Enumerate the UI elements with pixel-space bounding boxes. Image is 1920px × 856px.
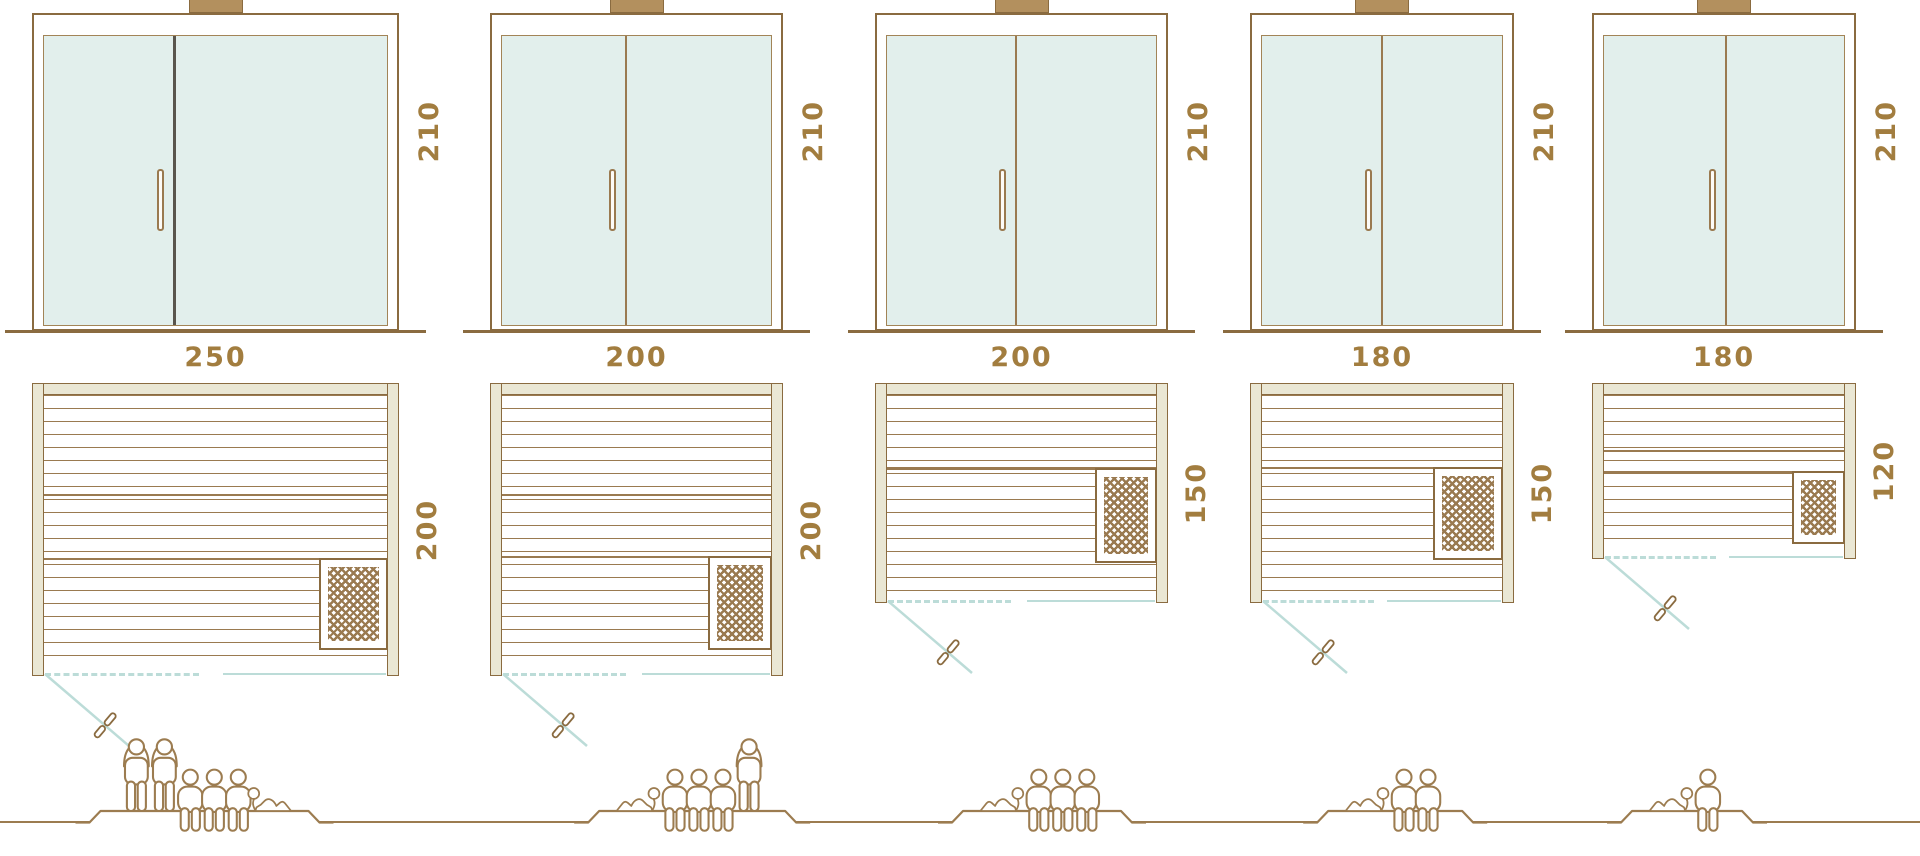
glass-doors: [501, 35, 772, 326]
person-lying-icon: [248, 788, 291, 811]
bench-edge-line: [502, 494, 771, 496]
plan-wall-back: [32, 383, 399, 395]
sauna-column: 210 250 200: [32, 0, 399, 856]
door-divider: [625, 36, 627, 325]
heater-bench-surround: [708, 556, 772, 650]
floor-plan-area: 150: [1250, 383, 1514, 603]
door-elevation: 210: [32, 0, 399, 333]
floor-plan: [32, 383, 399, 676]
floor-plan-area: 200: [32, 383, 399, 676]
floor-plan: [875, 383, 1168, 603]
roof-cap: [610, 0, 664, 13]
door-handle: [157, 169, 164, 231]
plan-wall-right: [771, 383, 783, 676]
heater-grate-icon: [1801, 480, 1836, 535]
door-handle: [1709, 169, 1716, 231]
plan-wall-left: [875, 383, 887, 603]
height-dimension-label: 210: [1183, 100, 1214, 162]
elevation-ground-line: [1565, 330, 1883, 333]
door-handle: [999, 169, 1006, 231]
elevation-ground-line: [1223, 330, 1541, 333]
door-divider: [1381, 36, 1383, 325]
capacity-people-icons: [1250, 744, 1514, 854]
person-lying-icon: [980, 788, 1023, 811]
plan-wall-back: [1250, 383, 1514, 395]
plan-wall-right: [1844, 383, 1856, 559]
bench-edge-line: [44, 494, 387, 496]
roof-cap: [1697, 0, 1751, 13]
door-frame: [32, 13, 399, 331]
depth-dimension-label: 120: [1869, 440, 1900, 502]
door-frame: [875, 13, 1168, 331]
door-frame: [490, 13, 783, 331]
plan-wall-left: [32, 383, 44, 676]
plan-wall-left: [1250, 383, 1262, 603]
width-dimension-label: 180: [1250, 336, 1514, 382]
door-handle: [609, 169, 616, 231]
height-dimension-label: 210: [414, 100, 445, 162]
heater-bench-surround: [319, 558, 388, 650]
door-swing-arc: [1592, 557, 1762, 677]
person-lying-icon: [1649, 788, 1692, 811]
bench-edge-line: [1604, 450, 1844, 452]
sauna-column: 210 180 150: [1250, 0, 1514, 856]
glass-doors: [43, 35, 388, 326]
door-handle-icon: [1654, 595, 1677, 621]
plan-wall-right: [1156, 383, 1168, 603]
heater-bench-surround: [1792, 471, 1845, 544]
glass-doors: [1261, 35, 1503, 326]
person-standing-icon: [152, 739, 177, 811]
width-dimension-label: 200: [875, 336, 1168, 382]
door-handle-icon: [552, 712, 575, 738]
width-dimension-label: 250: [32, 336, 399, 382]
heater-bench-surround: [1095, 468, 1157, 563]
door-handle-icon: [94, 712, 117, 738]
capacity-people-icons: [875, 744, 1168, 854]
door-divider: [1725, 36, 1727, 325]
glass-wall-line: [223, 673, 386, 675]
door-swing-arc: [875, 601, 1045, 721]
glass-doors: [1603, 35, 1845, 326]
elevation-ground-line: [5, 330, 426, 333]
heater-grate-icon: [1104, 477, 1148, 554]
sauna-column: 210 200 200: [490, 0, 783, 856]
door-elevation: 210: [490, 0, 783, 333]
width-dimension-label: 180: [1592, 336, 1856, 382]
sauna-column: 210 180 120: [1592, 0, 1856, 856]
floor-plan: [490, 383, 783, 676]
elevation-ground-line: [463, 330, 810, 333]
elevation-ground-line: [848, 330, 1195, 333]
door-handle-icon: [937, 639, 960, 665]
door-swing-arc: [1250, 601, 1420, 721]
roof-cap: [1355, 0, 1409, 13]
height-dimension-label: 210: [1871, 100, 1902, 162]
capacity-people-icons: [1592, 744, 1856, 854]
depth-dimension-label: 150: [1181, 462, 1212, 524]
door-handle: [1365, 169, 1372, 231]
door-divider: [173, 36, 176, 325]
width-dimension-label: 200: [490, 336, 783, 382]
person-lying-icon: [1346, 788, 1389, 811]
plan-wall-right: [1502, 383, 1514, 603]
floor-plan-area: 200: [490, 383, 783, 676]
floor-plan-area: 120: [1592, 383, 1856, 559]
plan-wall-back: [875, 383, 1168, 395]
door-elevation: 210: [1592, 0, 1856, 333]
plan-wall-left: [1592, 383, 1604, 559]
glass-wall-line: [1027, 600, 1155, 602]
depth-dimension-label: 200: [412, 498, 443, 560]
plan-wall-back: [1592, 383, 1856, 395]
plan-wall-back: [490, 383, 783, 395]
depth-dimension-label: 200: [796, 498, 827, 560]
person-standing-icon: [737, 739, 762, 811]
depth-dimension-label: 150: [1527, 462, 1558, 524]
roof-cap: [995, 0, 1049, 13]
person-lying-icon: [617, 788, 660, 811]
heater-grate-icon: [1442, 476, 1494, 551]
capacity-people-icons: [32, 744, 399, 854]
height-dimension-label: 210: [1529, 100, 1560, 162]
person-standing-icon: [124, 739, 149, 811]
floor-plan-area: 150: [875, 383, 1168, 603]
heater-grate-icon: [328, 567, 379, 641]
floor-plan: [1250, 383, 1514, 603]
capacity-people-icons: [490, 744, 783, 854]
door-handle-icon: [1312, 639, 1335, 665]
sauna-column: 210 200 150: [875, 0, 1168, 856]
plan-wall-right: [387, 383, 399, 676]
plan-wall-left: [490, 383, 502, 676]
sauna-size-comparison-diagram: 210 250 200: [0, 0, 1920, 856]
door-divider: [1015, 36, 1017, 325]
glass-wall-line: [642, 673, 770, 675]
height-dimension-label: 210: [798, 100, 829, 162]
glass-doors: [886, 35, 1157, 326]
roof-cap: [189, 0, 243, 13]
floor-plan: [1592, 383, 1856, 559]
door-elevation: 210: [875, 0, 1168, 333]
door-elevation: 210: [1250, 0, 1514, 333]
heater-bench-surround: [1433, 467, 1503, 560]
door-frame: [1250, 13, 1514, 331]
heater-grate-icon: [717, 565, 763, 641]
door-frame: [1592, 13, 1856, 331]
